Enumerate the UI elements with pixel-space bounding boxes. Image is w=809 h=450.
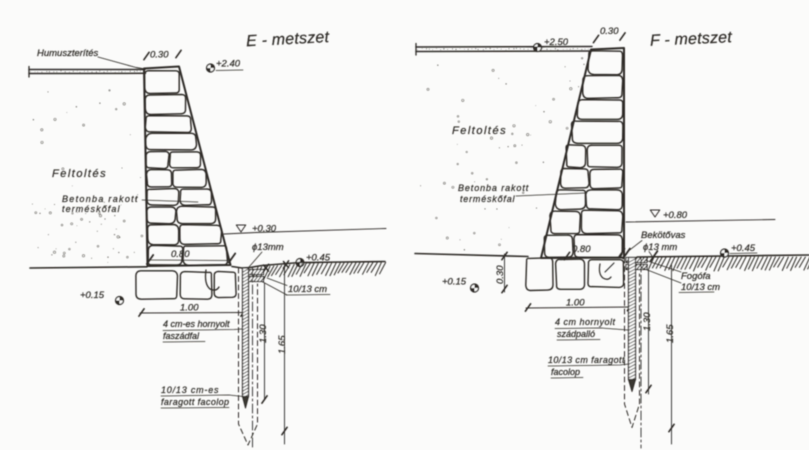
- svg-text:facolop: facolop: [551, 367, 580, 377]
- svg-text:szádpalló: szádpalló: [557, 329, 595, 339]
- svg-text:faszádfal: faszádfal: [163, 331, 200, 341]
- svg-text:0.80: 0.80: [572, 244, 591, 255]
- svg-text:4 cm hornyolt: 4 cm hornyolt: [555, 317, 616, 327]
- svg-text:ϕ13mm: ϕ13mm: [252, 242, 284, 253]
- svg-text:10/13 cm: 10/13 cm: [288, 284, 327, 295]
- svg-text:1.00: 1.00: [566, 298, 585, 309]
- svg-text:0.30: 0.30: [150, 50, 169, 61]
- svg-text:10/13 cm-es: 10/13 cm-es: [161, 385, 219, 395]
- svg-text:+0.80: +0.80: [663, 210, 688, 221]
- svg-text:1.30: 1.30: [642, 312, 653, 331]
- svg-text:terméskőfal: terméskőfal: [62, 204, 121, 214]
- svg-text:0.30: 0.30: [495, 265, 506, 284]
- svg-text:10/13 cm: 10/13 cm: [681, 282, 720, 293]
- svg-text:Humuszterítés: Humuszterítés: [37, 48, 98, 59]
- svg-text:1.30: 1.30: [258, 324, 269, 343]
- svg-text:+0.15: +0.15: [80, 290, 105, 301]
- svg-text:F - metszet: F - metszet: [650, 29, 733, 50]
- svg-text:4 cm-es hornyolt: 4 cm-es hornyolt: [163, 319, 230, 329]
- svg-text:Betonba rakott: Betonba rakott: [458, 183, 529, 193]
- svg-text:1.65: 1.65: [277, 335, 288, 354]
- svg-text:+0.45: +0.45: [731, 243, 756, 254]
- svg-text:Feltoltés: Feltoltés: [52, 168, 107, 180]
- svg-text:+2.40: +2.40: [216, 59, 241, 70]
- svg-text:1.00: 1.00: [180, 303, 199, 314]
- svg-text:Fogófa: Fogófa: [681, 271, 711, 282]
- svg-text:1.65: 1.65: [665, 324, 676, 343]
- svg-text:Bekötővas: Bekötővas: [641, 230, 686, 241]
- svg-text:Betonba rakott: Betonba rakott: [62, 194, 139, 204]
- svg-text:+2.50: +2.50: [544, 37, 569, 48]
- svg-text:0.80: 0.80: [171, 249, 190, 260]
- svg-text:terméskőfal: terméskőfal: [460, 194, 516, 204]
- svg-text:+0.15: +0.15: [442, 277, 467, 288]
- svg-text:Feltoltés: Feltoltés: [452, 125, 507, 137]
- svg-text:+0.45: +0.45: [306, 253, 331, 264]
- svg-text:0.30: 0.30: [600, 26, 619, 37]
- svg-text:faragott facolop: faragott facolop: [161, 397, 229, 407]
- svg-text:+0.30: +0.30: [252, 224, 277, 235]
- svg-text:ϕ13 mm: ϕ13 mm: [643, 242, 677, 253]
- svg-text:10/13 cm faragott: 10/13 cm faragott: [548, 355, 625, 365]
